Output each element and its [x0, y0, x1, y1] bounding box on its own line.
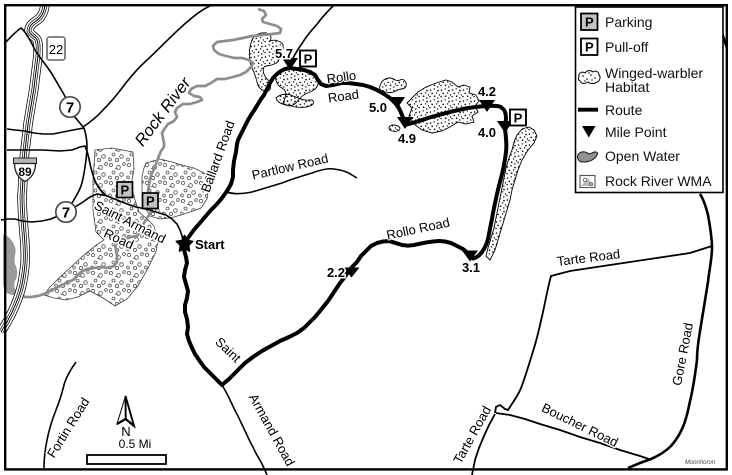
svg-text:22: 22	[49, 42, 63, 57]
svg-text:7: 7	[62, 205, 70, 222]
svg-text:2.2: 2.2	[327, 265, 345, 280]
svg-text:P: P	[585, 15, 594, 30]
svg-text:Route: Route	[605, 102, 643, 118]
svg-text:7: 7	[66, 100, 74, 117]
svg-text:P: P	[514, 111, 523, 126]
svg-text:Rock River WMA: Rock River WMA	[605, 173, 712, 189]
svg-text:Mile Point: Mile Point	[605, 124, 667, 140]
svg-text:P: P	[304, 52, 313, 67]
svg-text:Open Water: Open Water	[605, 148, 680, 164]
svg-text:P: P	[585, 40, 594, 55]
svg-text:Parking: Parking	[605, 14, 652, 30]
svg-text:4.0: 4.0	[478, 125, 496, 140]
svg-text:4.9: 4.9	[398, 131, 416, 146]
svg-text:4.2: 4.2	[478, 84, 496, 99]
svg-text:Start: Start	[195, 237, 225, 252]
svg-text:Moonhoron: Moonhoron	[685, 460, 716, 466]
svg-text:Pull-off: Pull-off	[605, 39, 648, 55]
svg-text:P: P	[146, 194, 155, 209]
svg-text:P: P	[120, 183, 129, 198]
svg-text:3.1: 3.1	[462, 260, 480, 275]
svg-text:89: 89	[18, 165, 32, 179]
svg-text:0.5 Mi: 0.5 Mi	[119, 437, 152, 451]
svg-text:5.0: 5.0	[369, 100, 387, 115]
svg-text:5.7: 5.7	[275, 46, 293, 61]
svg-text:Habitat: Habitat	[605, 79, 649, 95]
